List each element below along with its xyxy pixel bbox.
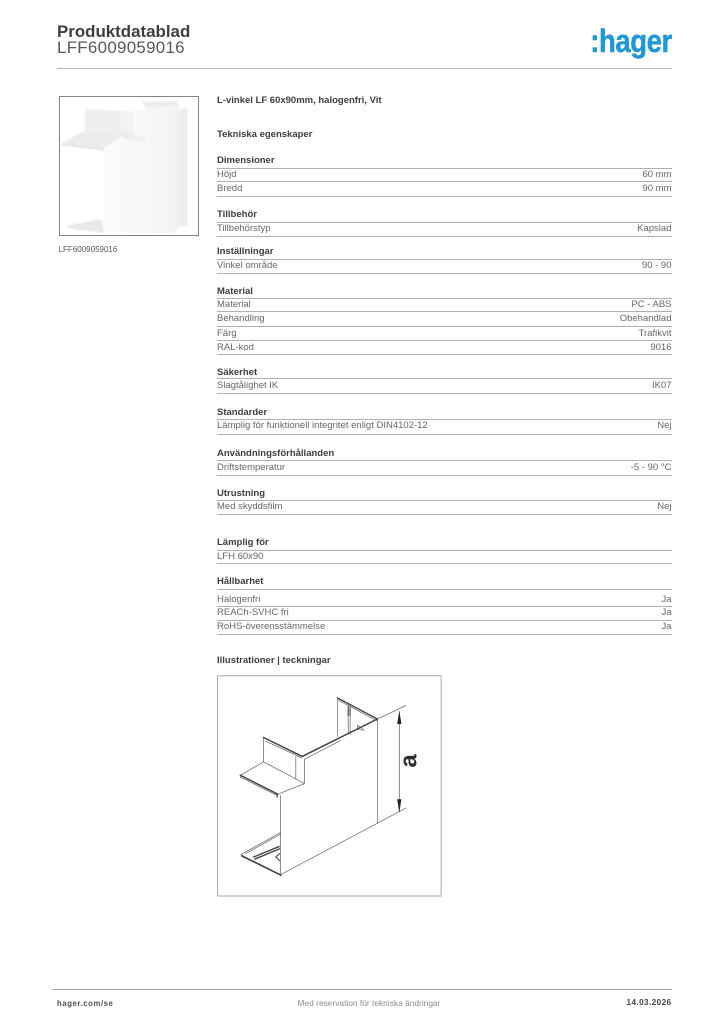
svg-text:a: a [396, 754, 423, 768]
